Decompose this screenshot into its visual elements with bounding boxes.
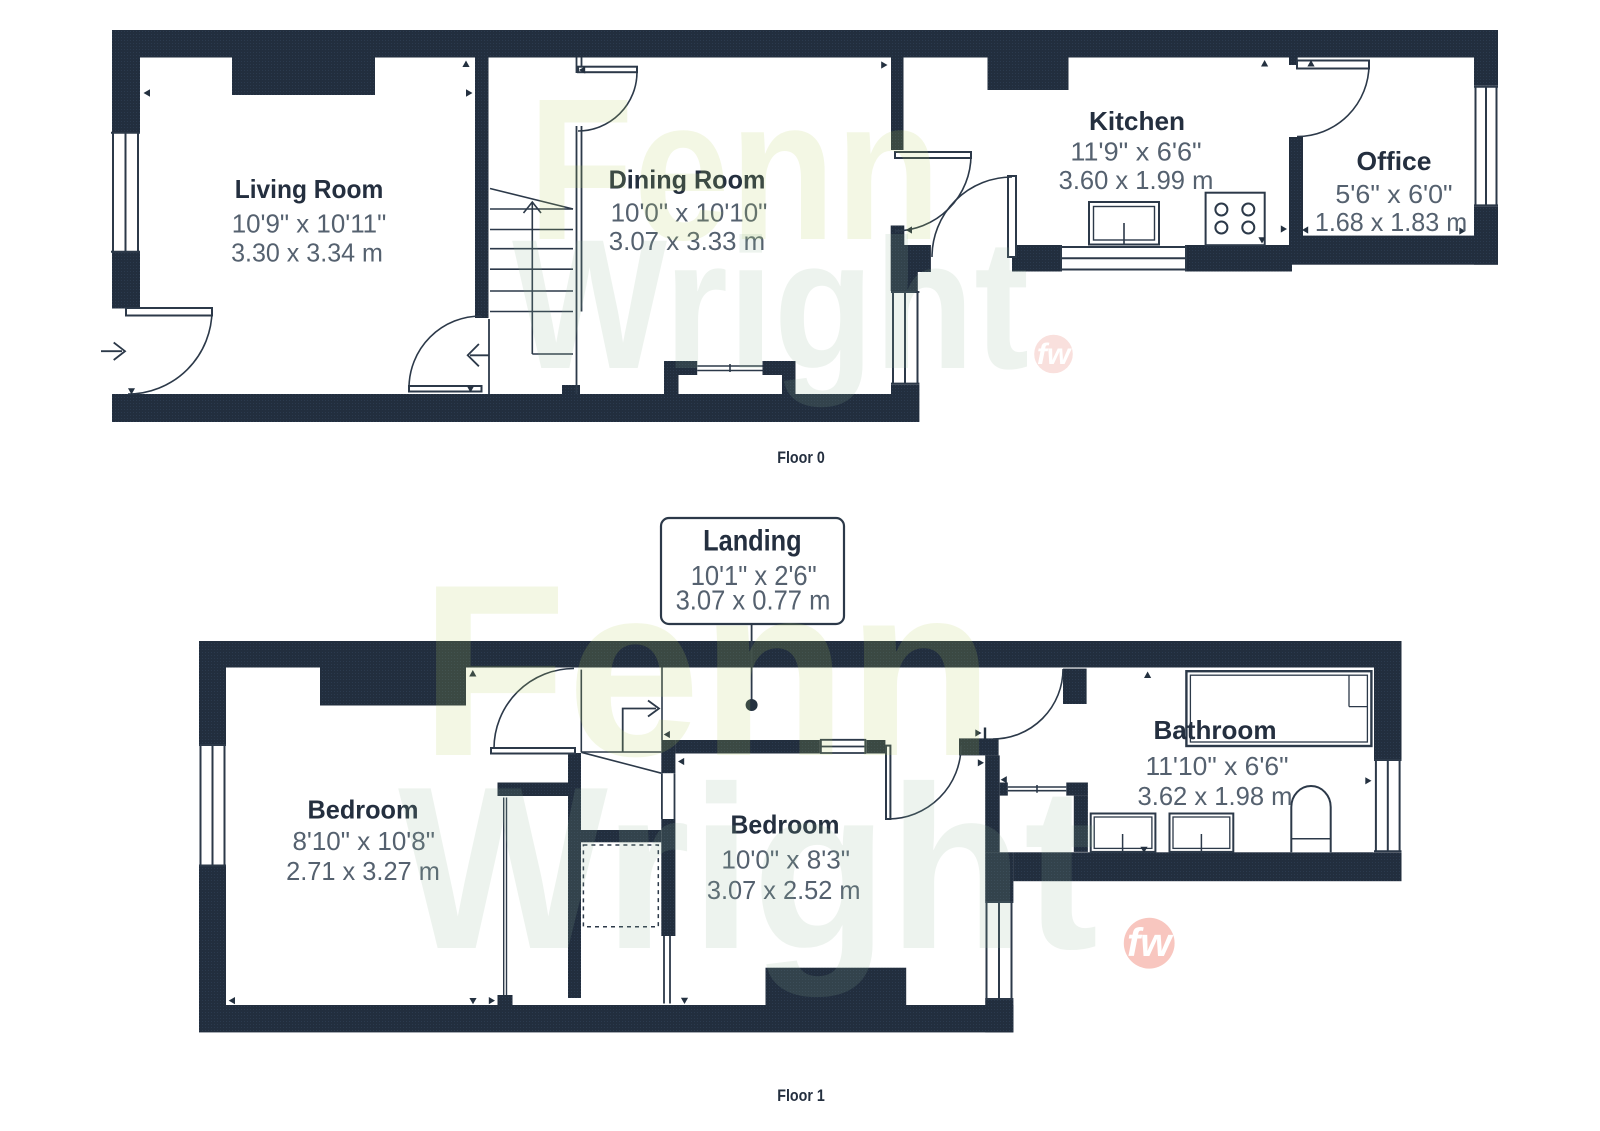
- svg-text:3.30 x 3.34 m: 3.30 x 3.34 m: [231, 238, 383, 268]
- svg-text:Bathroom: Bathroom: [1154, 715, 1277, 745]
- svg-text:11'9" x 6'6": 11'9" x 6'6": [1070, 137, 1201, 167]
- svg-text:fw: fw: [1127, 921, 1174, 965]
- svg-text:10'9" x 10'11": 10'9" x 10'11": [232, 208, 387, 238]
- svg-text:3.60 x 1.99 m: 3.60 x 1.99 m: [1059, 165, 1214, 195]
- svg-text:Wright: Wright: [512, 202, 1029, 408]
- svg-text:Floor 0: Floor 0: [777, 449, 825, 467]
- svg-text:Living Room: Living Room: [235, 174, 384, 204]
- svg-text:fw: fw: [1037, 338, 1072, 371]
- svg-text:Floor 1: Floor 1: [777, 1087, 825, 1105]
- svg-text:11'10" x 6'6": 11'10" x 6'6": [1146, 751, 1289, 781]
- svg-text:1.68 x 1.83 m: 1.68 x 1.83 m: [1315, 207, 1467, 237]
- svg-text:Office: Office: [1357, 146, 1432, 176]
- svg-text:5'6" x 6'0": 5'6" x 6'0": [1335, 179, 1452, 209]
- svg-text:3.62 x 1.98 m: 3.62 x 1.98 m: [1138, 781, 1293, 811]
- svg-text:Wright: Wright: [398, 739, 1098, 998]
- svg-text:Kitchen: Kitchen: [1089, 106, 1185, 136]
